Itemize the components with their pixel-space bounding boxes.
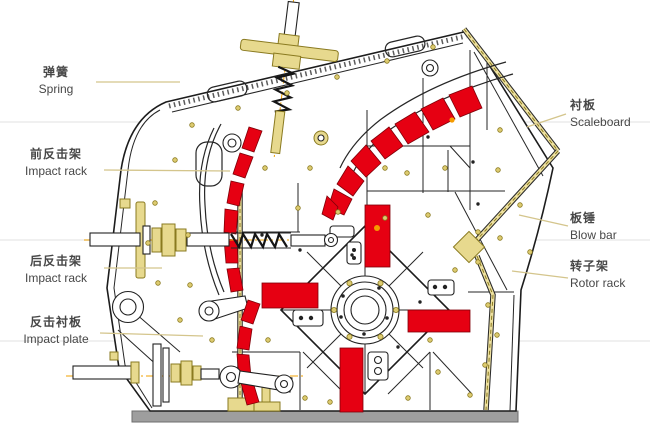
bolt-nut [272, 53, 300, 69]
bolt-shaft [73, 366, 131, 379]
label-rotor-rack-zh: 转子架 [570, 258, 625, 275]
bolt-shaft [284, 1, 299, 36]
label-spring: 弹簧 Spring [6, 64, 106, 98]
label-spring-en: Spring [6, 81, 106, 98]
blow-bar-bottom [340, 348, 363, 412]
label-impact-plate-zh: 反击衬板 [6, 314, 106, 331]
machine-base [132, 411, 518, 422]
label-blow-bar: 板锤 Blow bar [570, 210, 617, 244]
label-scaleboard-en: Scaleboard [570, 114, 631, 131]
blow-bar-left [262, 283, 318, 308]
blow-bar-top [365, 205, 390, 267]
label-rotor-rack: 转子架 Rotor rack [570, 258, 625, 292]
label-impact-plate: 反击衬板 Impact plate [6, 314, 106, 348]
label-rotor-rack-en: Rotor rack [570, 275, 625, 292]
blow-bar-right [408, 310, 470, 332]
bolt-shaft [90, 233, 140, 246]
label-front-impact-rack: 前反击架 Impact rack [6, 146, 106, 180]
label-impact-plate-en: Impact plate [6, 331, 106, 348]
label-blow-bar-zh: 板锤 [570, 210, 617, 227]
label-front-impact-rack-zh: 前反击架 [6, 146, 106, 163]
label-blow-bar-en: Blow bar [570, 227, 617, 244]
label-scaleboard-zh: 衬板 [570, 97, 631, 114]
rotor-hub [331, 276, 399, 344]
label-scaleboard: 衬板 Scaleboard [570, 97, 631, 131]
label-spring-zh: 弹簧 [6, 64, 106, 81]
label-front-impact-rack-en: Impact rack [6, 163, 106, 180]
label-rear-impact-rack: 后反击架 Impact rack [6, 253, 106, 287]
label-rear-impact-rack-en: Impact rack [6, 270, 106, 287]
flange-plate [153, 344, 161, 406]
impact-crusher-diagram: 弹簧 Spring 前反击架 Impact rack 后反击架 Impact r… [0, 0, 650, 430]
label-rear-impact-rack-zh: 后反击架 [6, 253, 106, 270]
